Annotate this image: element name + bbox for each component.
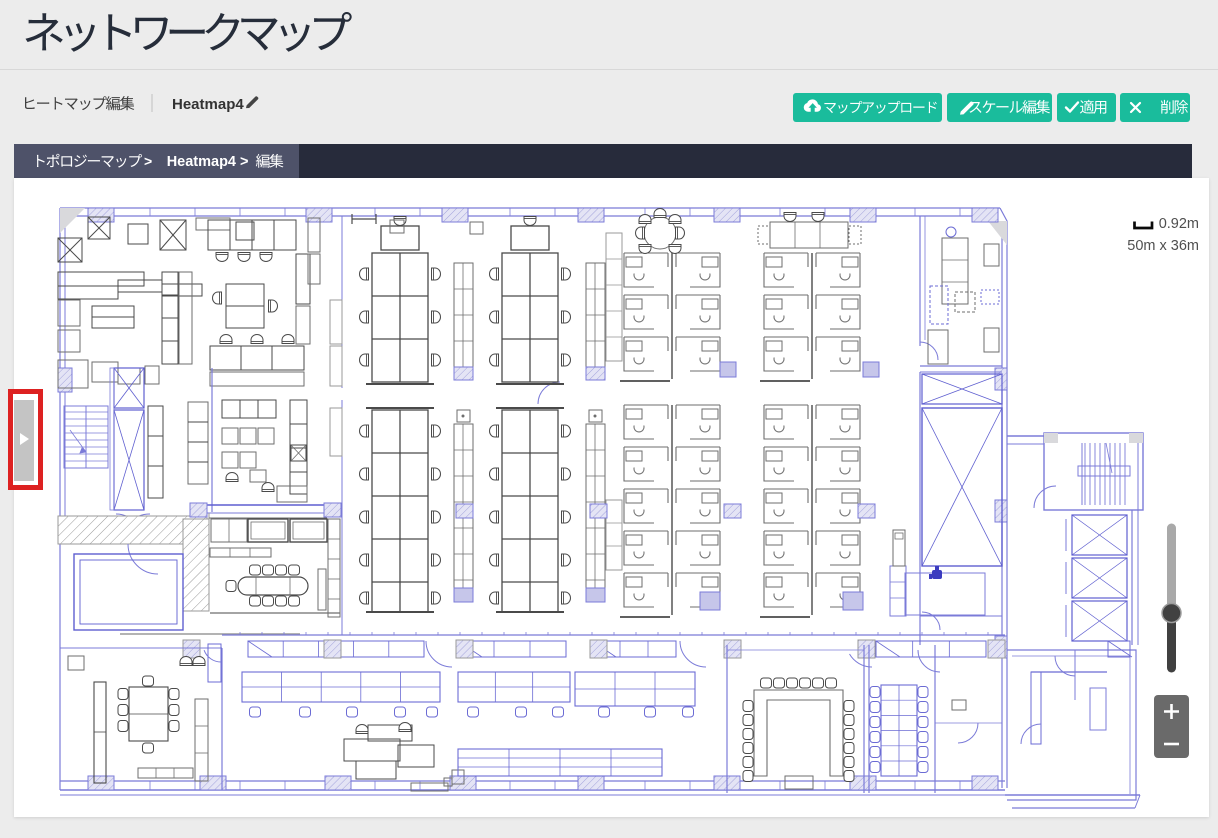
svg-text:Heatmap4: Heatmap4 bbox=[172, 96, 244, 113]
svg-text:Heatmap4 >: Heatmap4 > bbox=[167, 154, 249, 170]
svg-text:>: > bbox=[144, 153, 152, 169]
